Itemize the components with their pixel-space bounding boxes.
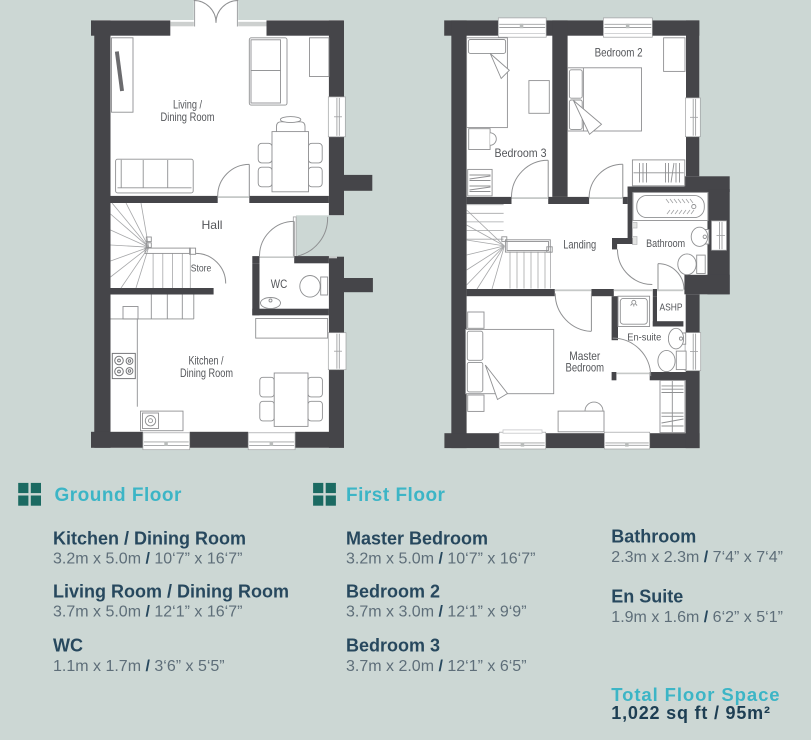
svg-text:Ground Floor: Ground Floor	[55, 485, 182, 506]
svg-text:Store: Store	[191, 263, 212, 275]
svg-text:ASHP: ASHP	[660, 303, 683, 314]
svg-text:Master Bedroom: Master Bedroom	[346, 529, 488, 549]
svg-text:First Floor: First Floor	[346, 485, 446, 506]
svg-text:En-suite: En-suite	[627, 332, 661, 344]
svg-text:Bathroom: Bathroom	[611, 527, 696, 547]
svg-text:3.7m x 2.0m / 12‘1” x 6‘5”: 3.7m x 2.0m / 12‘1” x 6‘5”	[346, 658, 527, 675]
svg-text:3.7m x 5.0m / 12‘1” x 16‘7”: 3.7m x 5.0m / 12‘1” x 16‘7”	[53, 604, 242, 621]
svg-text:Bedroom: Bedroom	[566, 360, 605, 374]
svg-text:Bathroom: Bathroom	[646, 238, 685, 250]
svg-text:Dining Room: Dining Room	[180, 366, 233, 380]
svg-text:Landing: Landing	[563, 238, 596, 252]
svg-text:2.3m x 2.3m / 7‘4” x 7‘4”: 2.3m x 2.3m / 7‘4” x 7‘4”	[611, 549, 783, 566]
svg-text:Bedroom 2: Bedroom 2	[346, 581, 440, 601]
svg-text:Bedroom 2: Bedroom 2	[595, 46, 643, 60]
svg-text:Hall: Hall	[202, 218, 223, 232]
svg-text:Bedroom 3: Bedroom 3	[495, 146, 547, 160]
svg-text:Total Floor Space: Total Floor Space	[611, 684, 780, 705]
svg-text:Living Room / Dining Room: Living Room / Dining Room	[53, 581, 289, 601]
svg-text:Bedroom 3: Bedroom 3	[346, 636, 440, 656]
svg-text:3.7m x 3.0m / 12‘1” x 9‘9”: 3.7m x 3.0m / 12‘1” x 9‘9”	[346, 604, 527, 621]
svg-text:3.2m x 5.0m / 10‘7” x 16‘7”: 3.2m x 5.0m / 10‘7” x 16‘7”	[53, 551, 242, 568]
svg-text:En Suite: En Suite	[611, 587, 683, 607]
svg-text:1.1m x 1.7m / 3‘6” x 5‘5”: 1.1m x 1.7m / 3‘6” x 5‘5”	[53, 658, 225, 675]
svg-text:Kitchen / Dining Room: Kitchen / Dining Room	[53, 529, 246, 549]
svg-text:1,022 sq ft / 95m²: 1,022 sq ft / 95m²	[611, 703, 770, 723]
svg-text:WC: WC	[271, 277, 288, 291]
svg-text:1.9m x 1.6m / 6‘2” x 5‘1”: 1.9m x 1.6m / 6‘2” x 5‘1”	[611, 609, 783, 626]
svg-text:3.2m x 5.0m / 10‘7” x 16‘7”: 3.2m x 5.0m / 10‘7” x 16‘7”	[346, 551, 535, 568]
svg-text:WC: WC	[53, 636, 83, 656]
svg-text:Dining Room: Dining Room	[161, 110, 215, 124]
